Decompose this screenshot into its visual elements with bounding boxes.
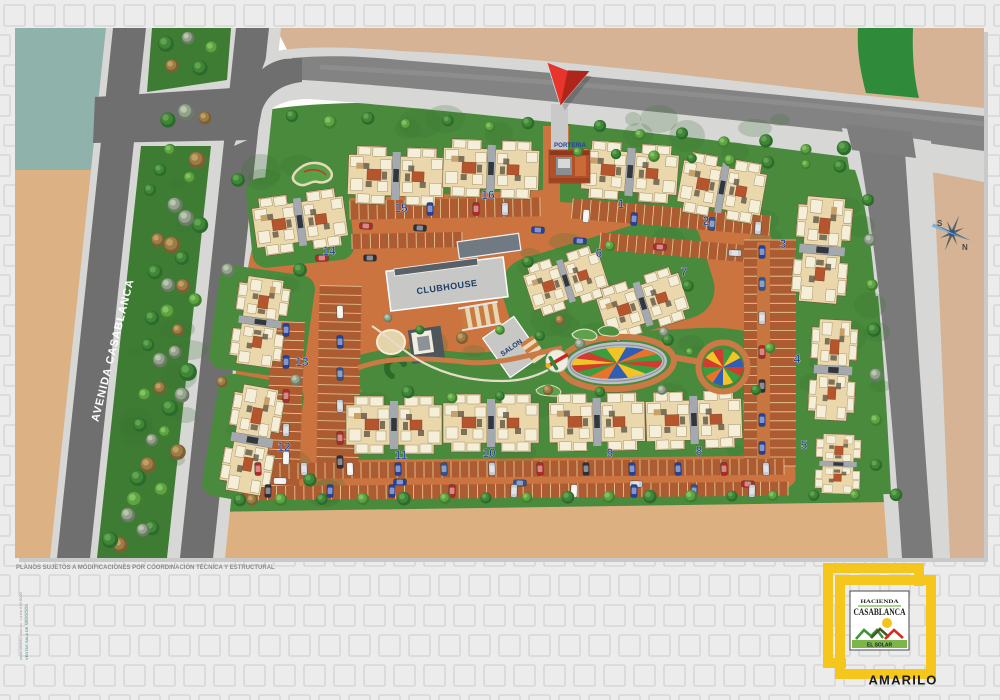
svg-text:8: 8 [696,444,703,458]
svg-text:EL SOLAR: EL SOLAR [867,643,893,649]
svg-text:PORTERIA: PORTERIA [554,142,587,149]
svg-text:AMARILO: AMARILO [868,673,937,688]
svg-text:PLANOS SUJETOS A MODIFICACIONE: PLANOS SUJETOS A MODIFICACIONES POR COOR… [16,563,275,571]
svg-text:2: 2 [703,214,710,228]
svg-text:S: S [937,219,943,228]
svg-text:16: 16 [481,188,495,202]
svg-text:3: 3 [780,237,787,251]
svg-text:10: 10 [482,446,496,460]
svg-text:HACIENDA: HACIENDA [861,599,899,605]
svg-text:7: 7 [681,265,688,279]
svg-text:N: N [962,243,968,252]
svg-text:6: 6 [596,246,603,260]
svg-text:14: 14 [322,244,336,258]
svg-text:11: 11 [395,448,408,462]
svg-text:1: 1 [618,197,625,211]
svg-text:13: 13 [295,355,309,369]
svg-text:15: 15 [394,201,408,215]
svg-text:12: 12 [277,440,291,454]
svg-text:9: 9 [607,446,614,460]
svg-text:5: 5 [801,438,808,452]
svg-text:4: 4 [794,352,801,366]
svg-text:www.amarilo.com.co · Linea 646: www.amarilo.com.co · Linea 646 8000 [18,591,23,660]
svg-text:CASABLANCA: CASABLANCA [854,607,906,617]
svg-text:VENTAS SALA DE NEGOCIOS: VENTAS SALA DE NEGOCIOS [24,604,29,660]
